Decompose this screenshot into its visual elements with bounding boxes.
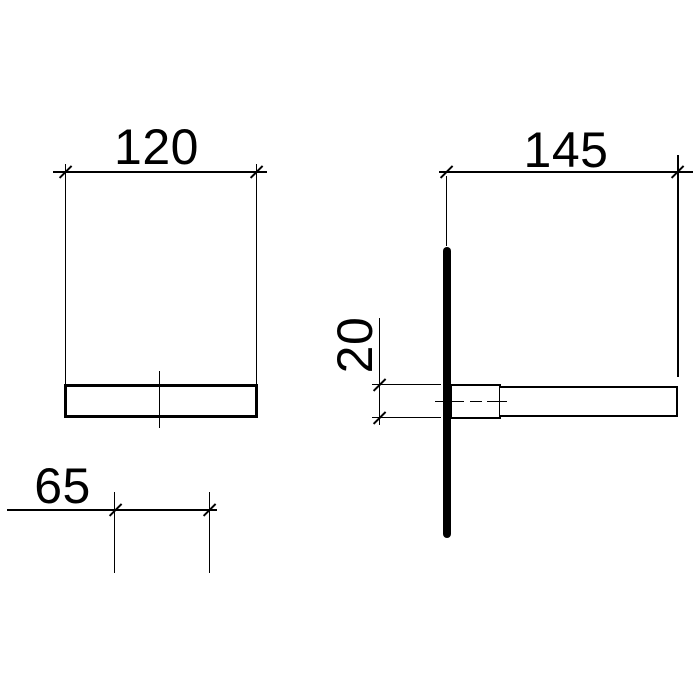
side-centerline-dash-3 (487, 401, 508, 403)
front-centerline (159, 371, 161, 428)
front-outline-left-edge (65, 164, 67, 384)
extension-line-20-bottom (372, 417, 441, 419)
technical-drawing-canvas: 120 65 145 20 (0, 0, 700, 700)
front-outline-right-edge (256, 164, 258, 384)
extension-line-65-left (114, 492, 116, 573)
dim-label-120: 120 (76, 122, 237, 172)
side-centerline-dash-1 (435, 401, 464, 403)
dim-label-20-wrap: 20 (329, 315, 381, 375)
side-shelf-profile (500, 386, 678, 417)
dim-line-120 (53, 171, 267, 173)
dim-line-145 (439, 171, 693, 173)
dim-label-65: 65 (12, 461, 113, 511)
dim-label-145: 145 (486, 125, 646, 175)
extension-line-20-top (372, 384, 441, 386)
extension-line-145-left (446, 176, 448, 246)
dim-label-20: 20 (330, 317, 380, 374)
extension-line-65-right (209, 492, 211, 573)
front-shelf-bar (64, 384, 259, 419)
side-wall-line (443, 247, 451, 538)
side-centerline-dash-2 (470, 401, 482, 403)
extension-line-145-right (677, 155, 679, 377)
dim-line-20 (379, 318, 381, 425)
